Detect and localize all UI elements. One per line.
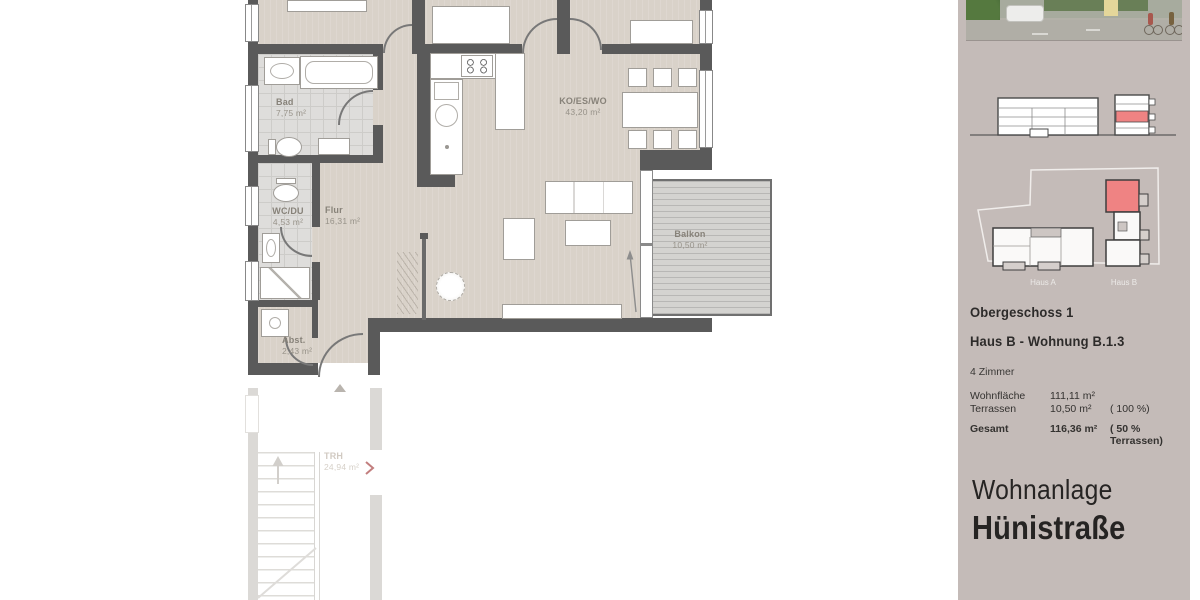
window [245, 261, 259, 301]
wall-room-divider [412, 0, 425, 44]
wall-storage [312, 307, 318, 338]
room-area: 16,31 m² [325, 216, 360, 227]
room-label-bad: Bad 7,75 m² [276, 96, 306, 120]
toilet [273, 184, 299, 202]
unit-title: Haus B - Wohnung B.1.3 [970, 334, 1174, 349]
bathtub-basin [305, 61, 373, 84]
stair-rail [319, 452, 320, 600]
wall-segment [557, 44, 570, 54]
chair [628, 68, 647, 87]
row-note: ( 50 % Terrassen) [1110, 423, 1182, 447]
room-area: 7,75 m² [276, 108, 306, 119]
wall-partition [422, 235, 426, 320]
table-row-total: Gesamt 116,36 m² ( 50 % Terrassen) [970, 423, 1182, 447]
project-photo [966, 0, 1182, 40]
bed [432, 6, 510, 44]
row-value: 116,36 m² [1050, 423, 1110, 447]
stair-treads [258, 452, 314, 600]
haus-b-core [1118, 222, 1127, 231]
bed [630, 20, 693, 44]
table-row: Terrassen 10,50 m² ( 100 %) [970, 403, 1182, 415]
photo-cyclist [1148, 13, 1153, 25]
room-label-flur: Flur 16,31 m² [325, 204, 360, 228]
haus-a-stub [1003, 262, 1025, 270]
room-area: 10,50 m² [655, 240, 725, 251]
room-area: 24,94 m² [324, 462, 359, 473]
haus-b-stub [1140, 254, 1149, 264]
haus-b-label: Haus B [1111, 278, 1137, 287]
window [245, 186, 259, 226]
room-name: Balkon [655, 228, 725, 240]
stair-rail [314, 452, 315, 600]
room-area: 4,53 m² [260, 217, 316, 228]
room-label-balkon: Balkon 10,50 m² [655, 228, 725, 252]
stairwell-wall [370, 495, 382, 600]
stairwell-window [245, 395, 259, 433]
section-balcony-stub [1149, 114, 1155, 120]
row-label: Terrassen [970, 403, 1050, 415]
entrance-marker-icon [334, 384, 346, 392]
chair [653, 130, 672, 149]
coffee-table [565, 220, 611, 246]
row-label: Wohnfläche [970, 390, 1050, 402]
project-title-line2: Hünistraße [972, 509, 1125, 547]
row-note: ( 100 %) [1110, 403, 1182, 415]
wall-segment [248, 44, 383, 54]
room-name: Bad [276, 96, 306, 108]
row-value: 10,50 m² [1050, 403, 1110, 415]
area-table: Wohnfläche 111,11 m² Terrassen 10,50 m² … [970, 390, 1182, 447]
washing-machine [261, 309, 289, 337]
photo-cyclist [1169, 12, 1174, 25]
chair [678, 130, 697, 149]
plant-icon [436, 272, 465, 301]
photo-hedge [1044, 0, 1148, 11]
dishwasher-knob [445, 145, 449, 149]
room-label-treppenhaus: TRH 24,94 m² [324, 450, 359, 474]
row-label: Gesamt [970, 423, 1050, 447]
washer-door [269, 317, 281, 329]
haus-b-stub [1140, 230, 1149, 240]
bath-bench [318, 138, 350, 155]
highlighted-floor [1116, 111, 1148, 122]
wall-partition-cap [420, 233, 428, 239]
washbasin [264, 57, 300, 85]
sideboard [502, 304, 622, 319]
room-name: KO/ES/WO [540, 95, 626, 107]
window [245, 4, 259, 42]
project-title-line1: Wohnanlage [972, 474, 1125, 506]
wardrobe-hatch [397, 252, 418, 314]
wall-room-divider [557, 0, 570, 44]
photo-lane-mark [1086, 29, 1100, 31]
haus-b-footprint [1106, 240, 1140, 266]
wall-connector [368, 318, 380, 375]
haus-a-label: Haus A [1030, 278, 1056, 287]
wall-balcony-top [640, 150, 712, 170]
wall-wc [312, 262, 320, 300]
photo-bike-wheel [1153, 25, 1163, 35]
sofa [545, 181, 633, 214]
room-label-abstell: Abst. 2,43 m² [282, 334, 312, 358]
room-label-wc: WC/DU 4,53 m² [260, 205, 316, 229]
kitchen-sink [435, 104, 458, 127]
project-title: Wohnanlage Hünistraße [972, 474, 1146, 547]
photo-bike-wheel [1174, 25, 1182, 35]
room-name: WC/DU [260, 205, 316, 217]
room-name: Abst. [282, 334, 312, 346]
chair [653, 68, 672, 87]
building-section-diagram [968, 84, 1178, 142]
shower [260, 267, 310, 299]
floorplan-sheet: Bad 7,75 m² WC/DU 4,53 m² Flur 16,31 m² … [0, 0, 1200, 600]
stairwell-wall [370, 388, 382, 450]
row-value: 111,11 m² [1050, 390, 1110, 402]
basin-bowl [266, 239, 276, 257]
wall-bath-bottom [248, 155, 383, 163]
room-area: 43,20 m² [540, 107, 626, 118]
haus-a-stub [1038, 262, 1060, 270]
unit-info: Obergeschoss 1 Haus B - Wohnung B.1.3 4 … [970, 305, 1182, 447]
basin-bowl [270, 63, 294, 79]
haus-b-highlighted-unit [1106, 180, 1139, 212]
chair [678, 68, 697, 87]
photo-lane-mark [1032, 33, 1048, 35]
oven [434, 82, 459, 100]
glazing-mullion [640, 243, 653, 246]
room-label-wohnen: KO/ES/WO 43,20 m² [540, 95, 626, 119]
bathtub [300, 56, 378, 89]
table-row: Wohnfläche 111,11 m² [970, 390, 1182, 402]
wall-kitchen [417, 53, 430, 175]
section-balcony-stub [1149, 99, 1155, 105]
armchair [503, 218, 535, 260]
room-name: TRH [324, 450, 359, 462]
washbasin [262, 233, 280, 263]
toilet-tank [268, 139, 276, 155]
section-basement-notch [1030, 129, 1048, 137]
wall-exterior-bottom [380, 318, 712, 332]
dining-table [622, 92, 698, 128]
photo-building-glow [1104, 0, 1118, 16]
row-note [1110, 390, 1182, 402]
haus-b-stub [1139, 194, 1148, 206]
haus-a-core [1031, 228, 1061, 237]
wall-segment [602, 44, 712, 54]
section-balcony-stub [1149, 127, 1155, 133]
kitchen-peninsula [495, 53, 525, 130]
wall-bath [373, 125, 383, 155]
room-count: 4 Zimmer [970, 366, 1182, 378]
cooktop [461, 55, 493, 77]
toilet [276, 137, 302, 157]
photo-car [1006, 5, 1044, 22]
wall-kitchen-end [417, 175, 455, 187]
chair [628, 130, 647, 149]
wall-wc-bottom [248, 300, 318, 307]
entry-arrow-icon [366, 462, 373, 474]
site-plan: Haus A Haus B [958, 158, 1188, 306]
floor-plan: Bad 7,75 m² WC/DU 4,53 m² Flur 16,31 m² … [0, 0, 960, 600]
window [699, 10, 713, 44]
room-area: 2,43 m² [282, 346, 312, 357]
bed [287, 0, 367, 12]
window [245, 85, 259, 152]
room-name: Flur [325, 204, 360, 216]
floor-title: Obergeschoss 1 [970, 305, 1174, 320]
info-sidebar: Haus A Haus B Obergeschoss 1 Haus B - Wo… [958, 0, 1190, 600]
window [699, 70, 713, 148]
